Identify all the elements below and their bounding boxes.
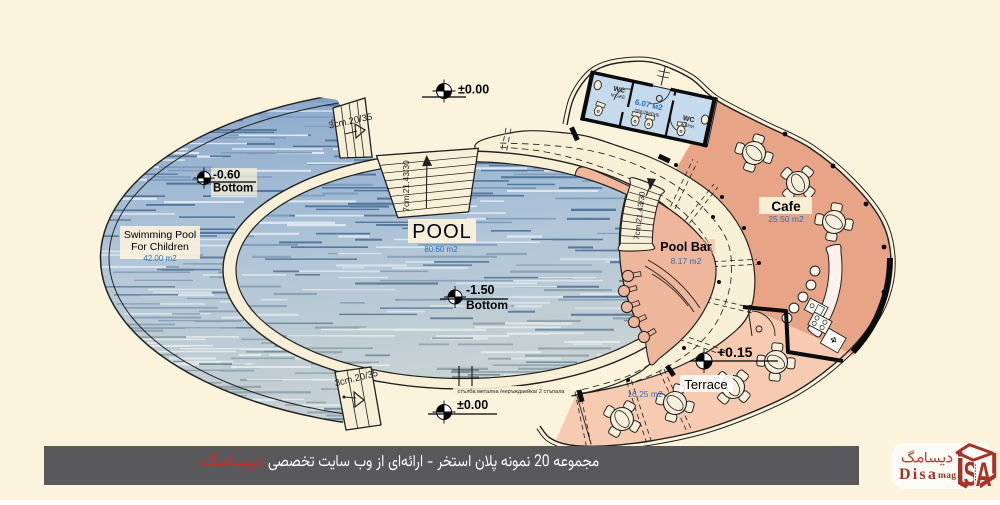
svg-text:стълба метална /неръждаейка/ 2: стълба метална /неръждаейка/ 2 стъпала: [458, 388, 566, 395]
svg-text:Cafe: Cafe: [771, 199, 801, 214]
svg-text:A: A: [976, 456, 992, 494]
svg-text:42.00 m2: 42.00 m2: [143, 254, 177, 263]
svg-text:For Children: For Children: [131, 241, 189, 253]
svg-text:-0.60: -0.60: [213, 168, 241, 182]
svg-text:mag: mag: [938, 471, 956, 481]
svg-text:Pool Bar: Pool Bar: [660, 240, 712, 254]
svg-text:Terrace: Terrace: [684, 377, 727, 392]
svg-text:Disa: Disa: [899, 466, 938, 483]
svg-text:25.50 m2: 25.50 m2: [768, 214, 804, 224]
svg-text:+0.15: +0.15: [717, 344, 753, 360]
svg-text:-1.50: -1.50: [466, 283, 495, 297]
svg-text:8.17 m2: 8.17 m2: [671, 256, 702, 266]
svg-text:Swimming Pool: Swimming Pool: [124, 229, 196, 241]
svg-text:80.60 m2: 80.60 m2: [424, 245, 458, 254]
svg-text:7cm.21.43/30: 7cm.21.43/30: [401, 160, 411, 212]
svg-text:POOL: POOL: [412, 221, 472, 243]
svg-text:Bottom: Bottom: [213, 183, 253, 195]
svg-text:Bottom: Bottom: [466, 298, 508, 312]
svg-text:±0.00: ±0.00: [458, 83, 489, 97]
svg-text:±0.00: ±0.00: [457, 398, 488, 412]
svg-text:16.25 m2: 16.25 m2: [627, 389, 663, 399]
